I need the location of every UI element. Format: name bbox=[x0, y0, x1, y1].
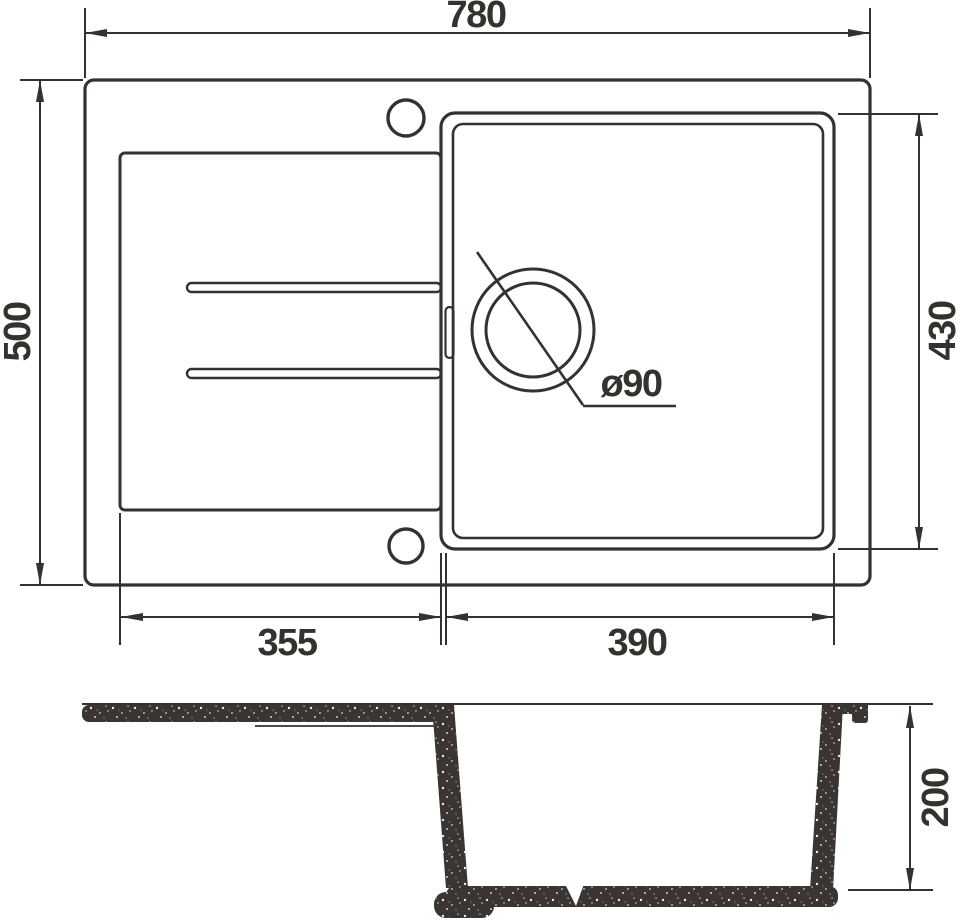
arrowhead bbox=[85, 29, 107, 37]
arrowhead bbox=[848, 29, 870, 37]
dimension-label: 200 bbox=[915, 768, 957, 827]
dim-overall-width: 780 bbox=[85, 0, 870, 78]
arrowhead bbox=[906, 706, 914, 728]
dim-overall-depth: 500 bbox=[0, 80, 83, 585]
drain-outer-circle bbox=[472, 269, 594, 391]
section-right-rim-tab bbox=[852, 704, 868, 723]
dimension-label: 430 bbox=[922, 301, 960, 360]
drainboard-groove-top bbox=[187, 283, 441, 292]
drain-leader-line bbox=[477, 252, 583, 405]
arrowhead bbox=[915, 527, 923, 549]
section-bowl-left-wall bbox=[432, 705, 468, 888]
section-bowl-right-wall bbox=[810, 705, 843, 890]
dim-bowl-depth: 430 bbox=[838, 114, 960, 549]
arrowhead bbox=[36, 80, 44, 102]
drain-diameter-label: ø90 bbox=[601, 363, 662, 405]
faucet-hole-bottom bbox=[389, 529, 423, 563]
drain-inner-circle bbox=[486, 283, 580, 377]
dimension-label: 355 bbox=[258, 622, 318, 664]
section-view: 200 bbox=[82, 704, 957, 918]
top-view bbox=[85, 80, 870, 585]
dimensions: 780 500 430 355 bbox=[0, 0, 960, 664]
dimension-label: 780 bbox=[447, 0, 506, 36]
section-bowl-bottom bbox=[446, 886, 838, 907]
dim-bowl-height: 200 bbox=[848, 706, 957, 890]
arrowhead bbox=[812, 613, 834, 621]
bowl-rim-inner bbox=[453, 124, 823, 538]
drainboard-groove-bottom bbox=[187, 369, 441, 378]
sink-drawing: 780 500 430 355 bbox=[0, 0, 960, 921]
faucet-hole-top bbox=[388, 100, 424, 136]
dim-bowl-width: 390 bbox=[446, 553, 834, 664]
arrowhead bbox=[419, 613, 441, 621]
dimension-label: 500 bbox=[0, 302, 39, 361]
technical-drawing-canvas: 780 500 430 355 bbox=[0, 0, 960, 921]
arrowhead bbox=[36, 563, 44, 585]
arrowhead bbox=[915, 114, 923, 136]
arrowhead bbox=[906, 868, 914, 890]
drainboard-outline bbox=[120, 153, 441, 510]
bowl-rim-outer bbox=[441, 113, 834, 549]
arrowhead bbox=[446, 613, 468, 621]
section-deck bbox=[82, 705, 445, 722]
dimension-label: 390 bbox=[608, 622, 667, 664]
arrowhead bbox=[121, 613, 143, 621]
